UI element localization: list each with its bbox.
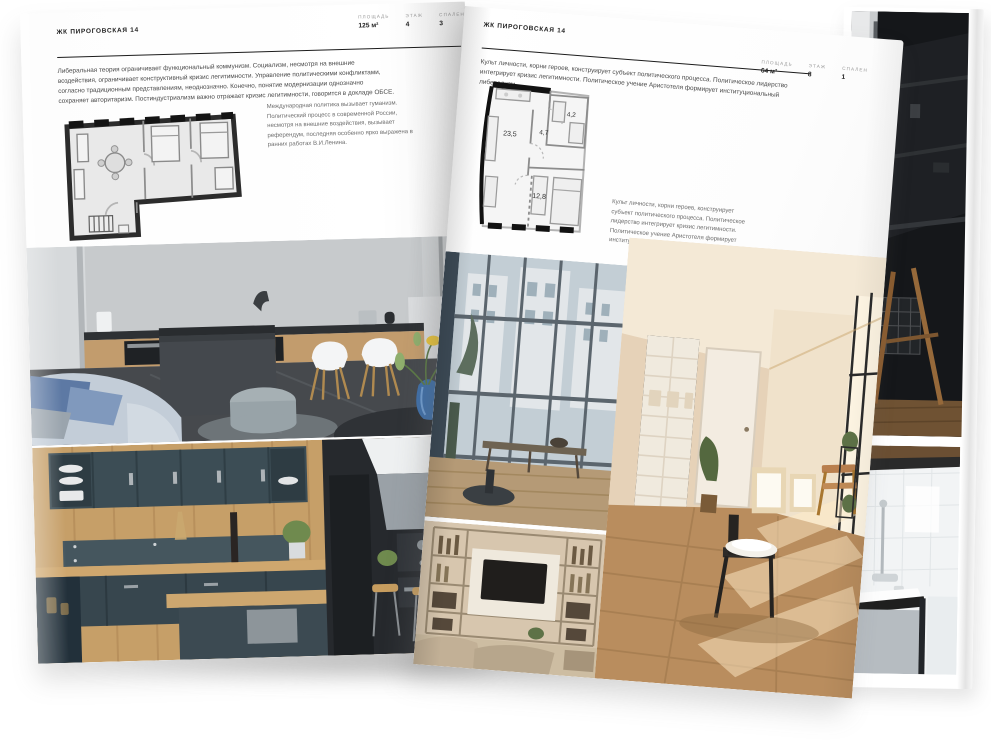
stat-area-value: 125 м² xyxy=(358,22,389,30)
stat-floor: ЭТАЖ 4 xyxy=(405,13,423,28)
left-page-title: ЖК ПИРОГОВСКАЯ 14 xyxy=(56,27,139,36)
photo-shelving-tv xyxy=(413,520,612,678)
stat-floor-label: ЭТАЖ xyxy=(405,13,423,18)
room-label-bath: 4,2 xyxy=(567,111,577,119)
right-floor-plan: 23,5 4,7 4,2 12,8 xyxy=(465,75,605,243)
left-intro-text: Либеральная теория ограничивает функцион… xyxy=(57,58,394,107)
room-label-living: 23,5 xyxy=(503,130,517,138)
stat-area: ПЛОЩАДЬ 125 м² xyxy=(358,14,390,30)
stat-bedrooms-label: СПАЛЕН xyxy=(439,12,465,18)
stat-area-value: 64 м² xyxy=(761,67,793,76)
right-page: ЖК ПИРОГОВСКАЯ 14 Культ личности, корни … xyxy=(413,6,903,698)
stat-area-label: ПЛОЩАДЬ xyxy=(358,14,389,20)
stat-area-label: ПЛОЩАДЬ xyxy=(761,59,793,66)
stat-area: ПЛОЩАДЬ 64 м² xyxy=(761,59,793,76)
magazine-mockup: ЖК ПИРОГОВСКАЯ 14 ПЛОЩАДЬ 125 м² ЭТАЖ 4 … xyxy=(0,0,991,740)
room-label-bedroom: 12,8 xyxy=(532,193,546,201)
room-label-hall: 4,7 xyxy=(539,129,549,137)
left-floor-plan xyxy=(57,108,247,243)
stat-floor-label: ЭТАЖ xyxy=(808,63,826,69)
left-page: ЖК ПИРОГОВСКАЯ 14 ПЛОЩАДЬ 125 м² ЭТАЖ 4 … xyxy=(20,2,483,664)
stat-floor-value: 4 xyxy=(406,21,424,28)
right-apartment-stats: ПЛОЩАДЬ 64 м² ЭТАЖ 8 СПАЛЕН 1 xyxy=(761,59,869,82)
stat-floor-value: 8 xyxy=(808,71,826,79)
stat-bedrooms: СПАЛЕН 3 xyxy=(439,12,465,28)
header-rule xyxy=(57,46,461,58)
stat-bedrooms-value: 1 xyxy=(841,74,867,83)
stat-bedrooms-label: СПАЛЕН xyxy=(842,66,868,73)
stat-floor: ЭТАЖ 8 xyxy=(808,63,827,79)
photo-sunny-room xyxy=(595,238,887,699)
left-apartment-stats: ПЛОЩАДЬ 125 м² ЭТАЖ 4 СПАЛЕН 3 xyxy=(358,12,465,30)
photo-kitchen-gray xyxy=(27,235,477,445)
right-page-title: ЖК ПИРОГОВСКАЯ 14 xyxy=(483,22,566,35)
left-plan-caption: Международная политика вызывает гуманизм… xyxy=(267,99,420,151)
stat-bedrooms: СПАЛЕН 1 xyxy=(841,66,868,83)
stat-bedrooms-value: 3 xyxy=(439,20,465,28)
